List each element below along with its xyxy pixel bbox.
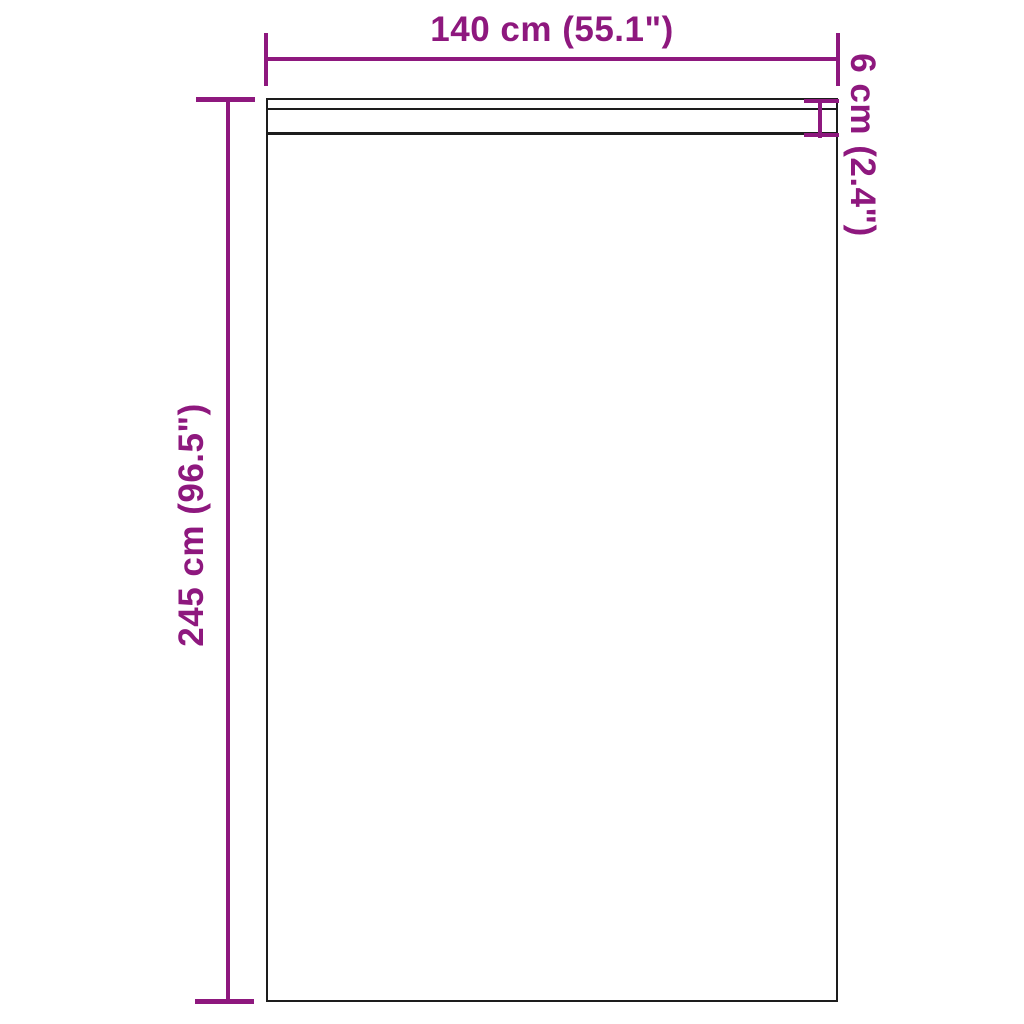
dimension-diagram: 140 cm (55.1") 245 cm (96.5") 6 cm (2.4"… bbox=[0, 0, 1024, 1024]
height-dimension-line bbox=[226, 99, 230, 1002]
curtain-outline bbox=[266, 98, 838, 1002]
rod-pocket-stitch-line-bottom bbox=[266, 132, 838, 135]
height-dimension-label: 245 cm (96.5") bbox=[172, 403, 212, 646]
width-dimension-label: 140 cm (55.1") bbox=[266, 10, 838, 50]
width-dimension-line bbox=[266, 57, 838, 61]
height-dimension-tick-top bbox=[196, 97, 255, 102]
height-dimension-tick-bottom bbox=[195, 999, 254, 1004]
pocket-dimension-label: 6 cm (2.4") bbox=[842, 53, 882, 237]
pocket-dimension-cap-top bbox=[804, 99, 839, 103]
pocket-dimension-cap-bottom bbox=[804, 133, 839, 137]
rod-pocket-stitch-line-top bbox=[266, 108, 838, 110]
